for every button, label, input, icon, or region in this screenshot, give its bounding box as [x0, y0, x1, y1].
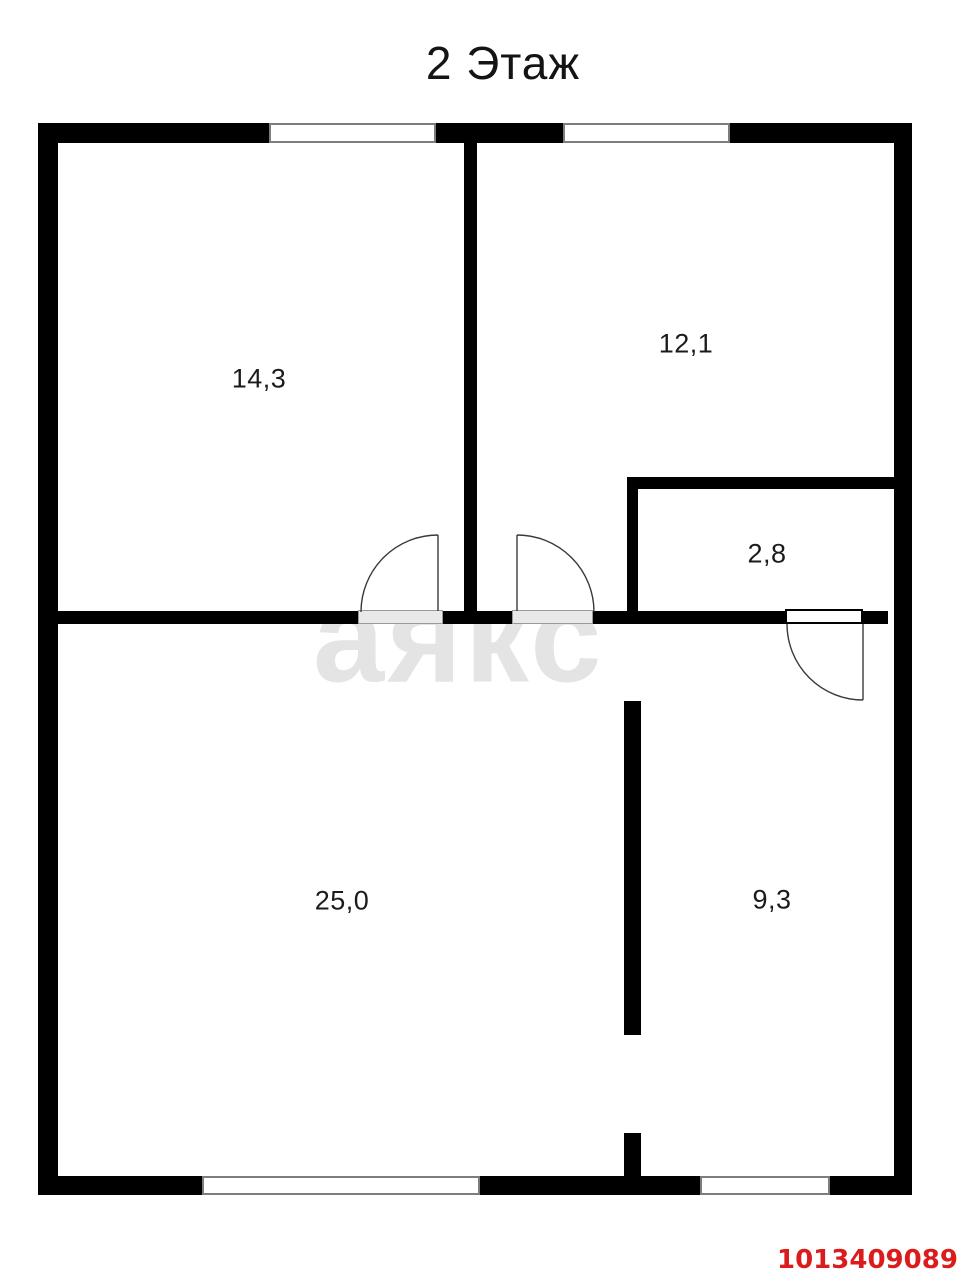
room-label-closet: 2,8: [747, 539, 786, 570]
room-label-top-left: 14,3: [232, 364, 287, 395]
room-label-bottom-left: 25,0: [315, 886, 370, 917]
door-swing-room-top-right-arc: [517, 535, 594, 612]
door-swing-layer: [0, 0, 961, 1280]
door-swing-closet-arc: [787, 624, 863, 700]
floor-title: 2 Этаж: [426, 36, 580, 90]
room-label-top-right: 12,1: [659, 329, 714, 360]
listing-id: 1013409089: [777, 1245, 958, 1275]
room-label-bottom-right: 9,3: [752, 885, 791, 916]
door-swing-room-top-left-arc: [361, 535, 438, 612]
floorplan-page: 2 Этаж аякс 14,3 12,1 2,8 25,0 9,3: [0, 0, 961, 1280]
